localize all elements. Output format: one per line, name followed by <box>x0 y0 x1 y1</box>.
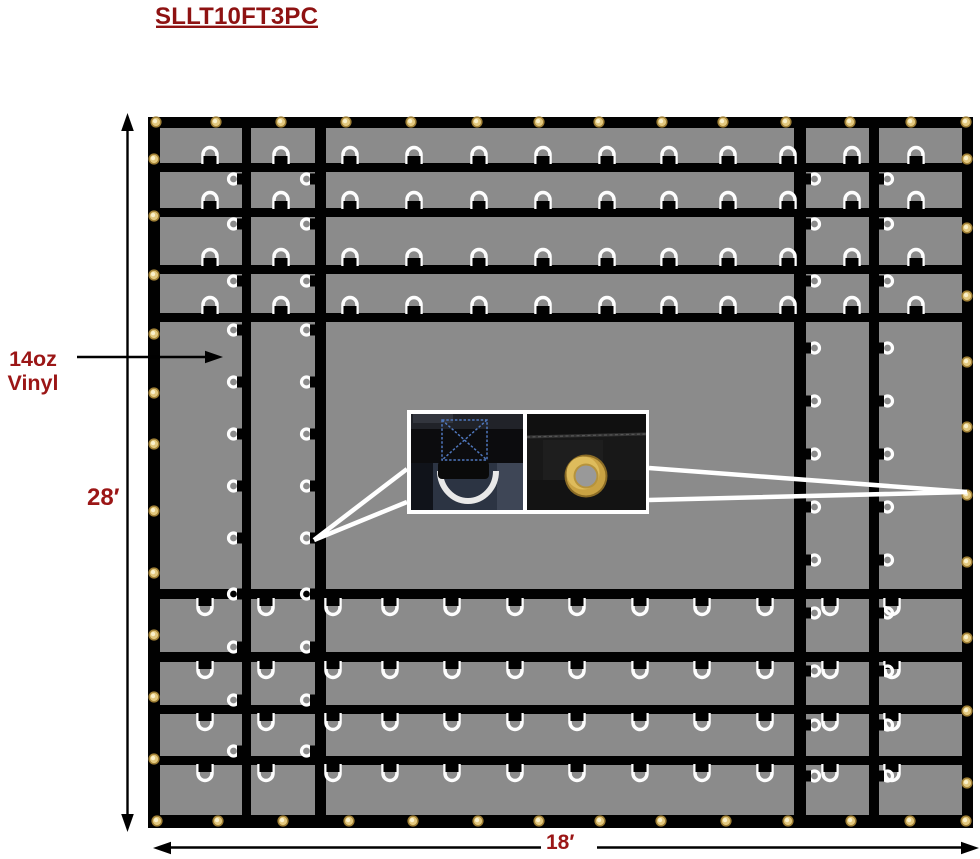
svg-text:14oz: 14oz <box>9 347 57 371</box>
svg-text:18′: 18′ <box>546 831 574 854</box>
svg-text:28′: 28′ <box>87 484 120 511</box>
svg-text:Vinyl: Vinyl <box>8 371 59 395</box>
